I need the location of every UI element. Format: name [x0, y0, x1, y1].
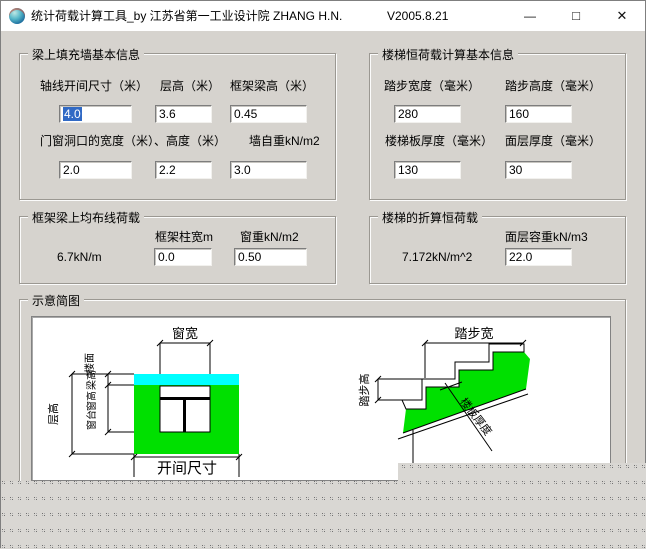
group-stair-info-title: 楼梯恒荷载计算基本信息: [378, 46, 518, 63]
label-step-width: 踏步宽度（毫米）: [384, 79, 480, 93]
app-window: 统计荷载计算工具_by 江苏省第一工业设计院 ZHANG H.N. V2005.…: [0, 0, 646, 548]
input-finish-thickness[interactable]: 30: [505, 161, 572, 179]
group-wall-info-title: 梁上填充墙基本信息: [28, 46, 144, 63]
window-title: 统计荷载计算工具_by 江苏省第一工业设计院 ZHANG H.N.: [31, 1, 342, 31]
window-version: V2005.8.21: [387, 1, 448, 31]
minimize-icon: —: [524, 9, 536, 23]
label-floor-height: 层高（米）: [160, 79, 220, 93]
input-opening-height[interactable]: 2.2: [155, 161, 212, 179]
window-frame-mullion: [183, 400, 186, 432]
label-floor-height-dim: 层高: [46, 403, 60, 425]
stair-section: 踏步宽 踏步高 楼板厚度: [357, 326, 530, 464]
label-column-width: 框架柱宽m: [155, 230, 213, 244]
label-floor-line: 楼面: [83, 353, 96, 373]
input-stair-slab-thickness[interactable]: 130: [394, 161, 461, 179]
group-beam-load: 框架梁上均布线荷载 框架柱宽m 窗重kN/m2 6.7kN/m 0.0 0.50: [19, 216, 336, 284]
window-frame-bar: [160, 397, 210, 400]
label-step-height-dim: 踏步高: [357, 374, 371, 407]
input-column-width[interactable]: 0.0: [154, 248, 212, 266]
group-beam-load-title: 框架梁上均布线荷载: [28, 209, 144, 226]
maximize-icon: □: [572, 8, 580, 23]
label-window-weight: 窗重kN/m2: [240, 230, 299, 244]
label-finish-density: 面层容重kN/m3: [505, 230, 588, 244]
input-floor-height[interactable]: 3.6: [155, 105, 212, 123]
wall-elevation: 窗宽 开间尺寸 层高 楼面 梁高 窗高 窗台: [46, 326, 242, 477]
input-finish-density[interactable]: 22.0: [505, 248, 572, 266]
input-window-weight[interactable]: 0.50: [234, 248, 307, 266]
stair-load-result: 7.172kN/m^2: [402, 250, 472, 264]
label-opening-size: 门窗洞口的宽度（米）、高度（米）: [40, 134, 226, 148]
beam-load-result: 6.7kN/m: [57, 250, 102, 264]
diagram-svg: 窗宽 开间尺寸 层高 楼面 梁高 窗高 窗台: [32, 317, 610, 480]
frame-beam-band: [134, 374, 239, 385]
label-finish-thickness: 面层厚度（毫米）: [505, 134, 601, 148]
label-stair-slab-thickness: 楼梯板厚度（毫米）: [385, 134, 493, 148]
label-window-width: 窗宽: [172, 326, 198, 341]
dither-pattern-region: [1, 463, 646, 549]
input-opening-width[interactable]: 2.0: [59, 161, 132, 179]
group-stair-info: 楼梯恒荷载计算基本信息 踏步宽度（毫米） 踏步高度（毫米） 280 160 楼梯…: [369, 53, 626, 200]
group-stair-load-title: 楼梯的折算恒荷载: [378, 209, 482, 226]
title-bar: 统计荷载计算工具_by 江苏省第一工业设计院 ZHANG H.N. V2005.…: [1, 1, 645, 31]
group-wall-info: 梁上填充墙基本信息 轴线开间尺寸（米） 层高（米） 框架梁高（米） 4.0 3.…: [19, 53, 336, 200]
app-icon: [9, 8, 25, 24]
label-window-sill: 窗台: [85, 410, 98, 430]
label-bay-size: 轴线开间尺寸（米）: [40, 79, 148, 93]
group-stair-load: 楼梯的折算恒荷载 面层容重kN/m3 7.172kN/m^2 22.0: [369, 216, 626, 284]
input-beam-height[interactable]: 0.45: [230, 105, 307, 123]
label-beam-height: 框架梁高（米）: [230, 79, 314, 93]
diagram-canvas: 窗宽 开间尺寸 层高 楼面 梁高 窗高 窗台: [31, 316, 611, 481]
minimize-button[interactable]: —: [507, 1, 553, 31]
label-beam-height-dim: 梁高: [85, 370, 98, 390]
input-step-width[interactable]: 280: [394, 105, 461, 123]
label-step-height: 踏步高度（毫米）: [505, 79, 601, 93]
label-wall-weight: 墙自重kN/m2: [249, 134, 320, 148]
input-bay-size[interactable]: 4.0: [59, 105, 132, 123]
input-wall-weight[interactable]: 3.0: [230, 161, 307, 179]
close-button[interactable]: ✕: [599, 1, 645, 31]
label-window-height-dim: 窗高: [85, 391, 98, 411]
group-diagram-title: 示意简图: [28, 292, 84, 309]
input-step-height[interactable]: 160: [505, 105, 572, 123]
label-step-width-dim: 踏步宽: [454, 326, 493, 341]
maximize-button[interactable]: □: [553, 1, 599, 31]
close-icon: ✕: [617, 8, 628, 23]
